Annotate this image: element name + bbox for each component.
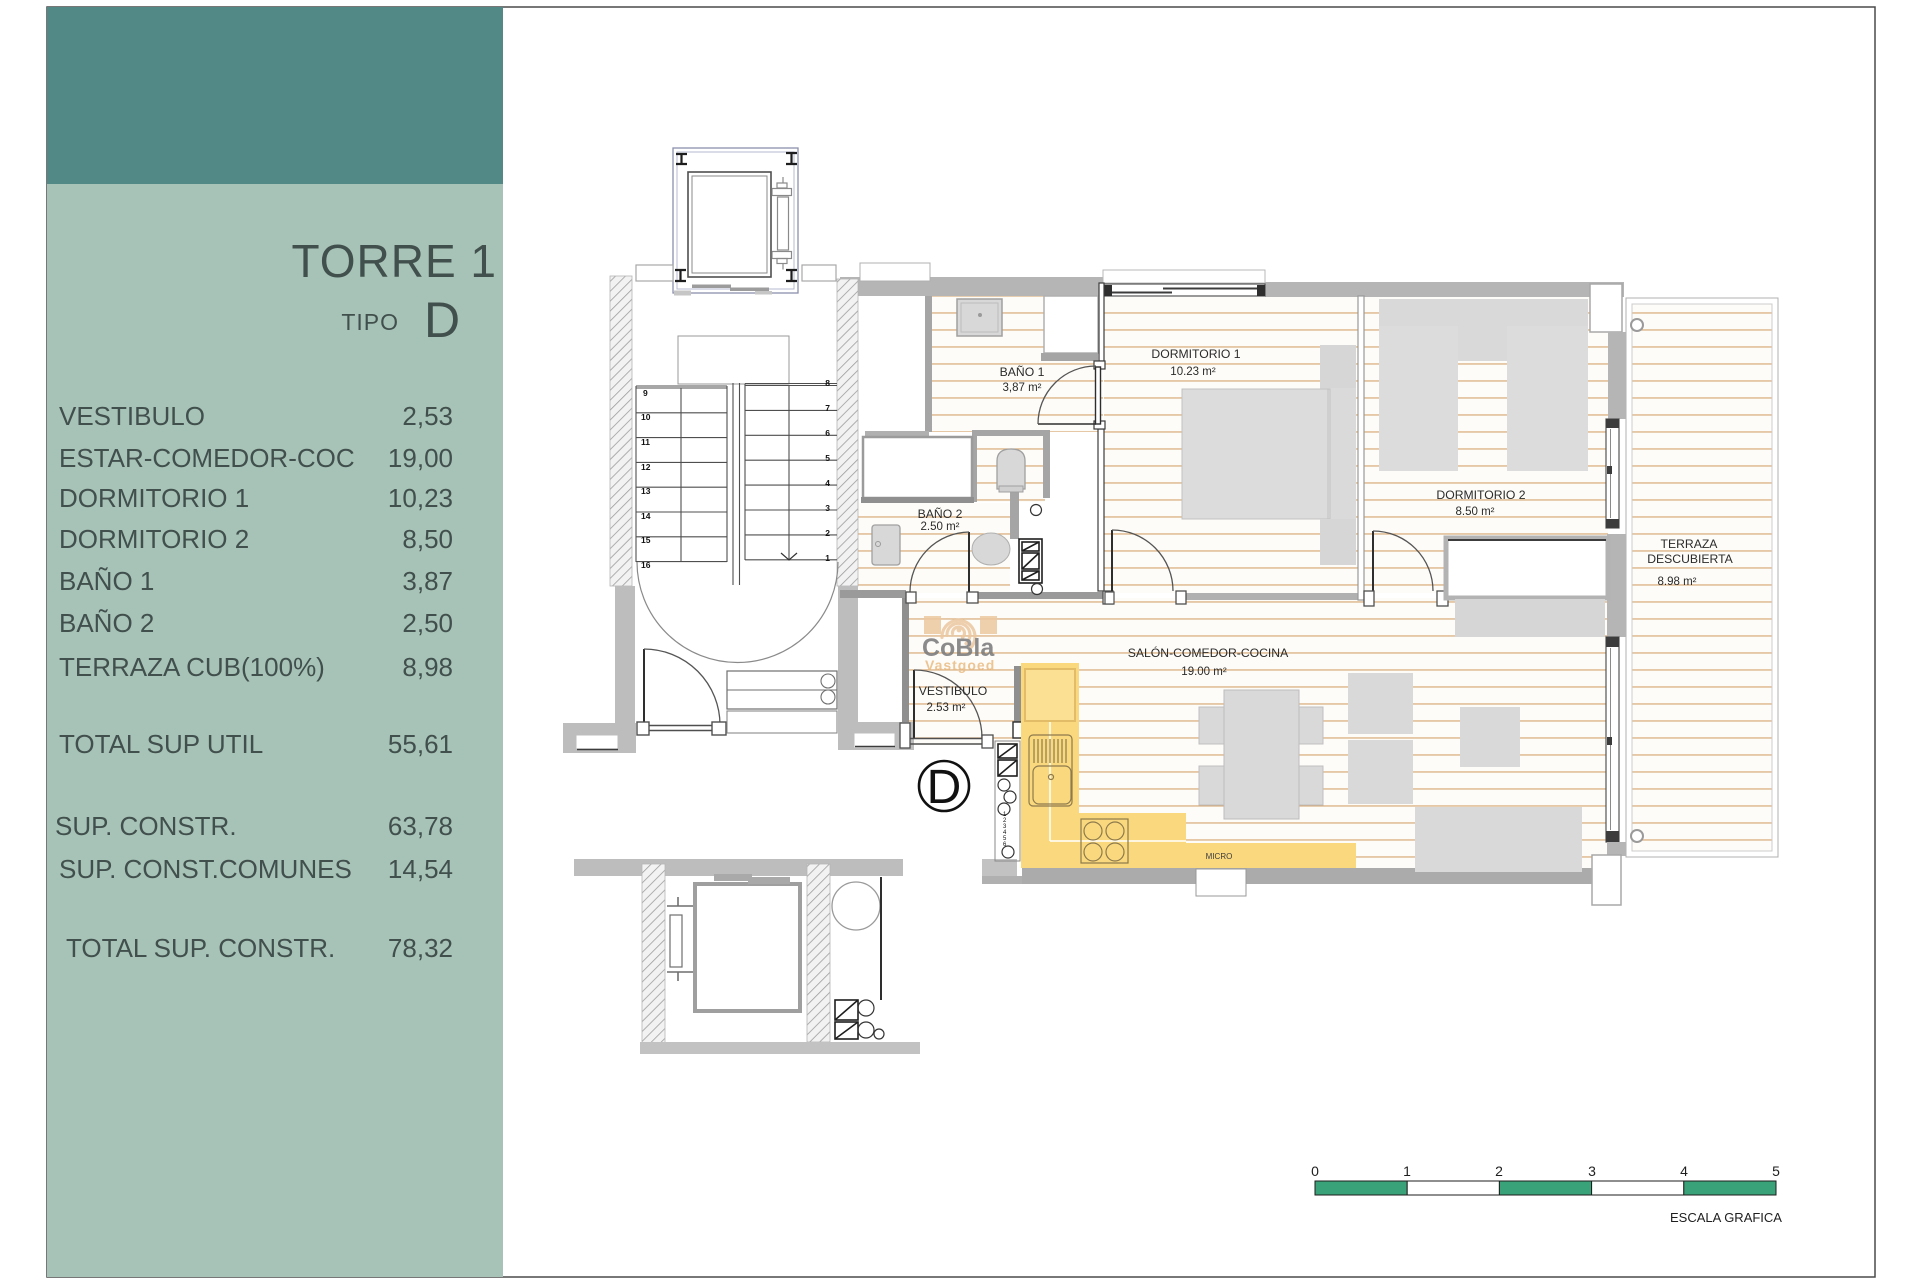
svg-text:5: 5: [1772, 1163, 1780, 1179]
svg-text:BAÑO 2: BAÑO 2: [59, 608, 154, 638]
svg-text:DESCUBIERTA: DESCUBIERTA: [1647, 552, 1733, 566]
svg-text:D: D: [927, 761, 962, 814]
svg-text:BAÑO 1: BAÑO 1: [1000, 365, 1045, 379]
svg-text:2.50 m²: 2.50 m²: [921, 521, 960, 533]
svg-text:8,50: 8,50: [402, 524, 453, 554]
svg-text:TOTAL SUP UTIL: TOTAL SUP UTIL: [59, 729, 263, 759]
svg-text:3: 3: [1588, 1163, 1596, 1179]
svg-text:11: 11: [641, 437, 650, 447]
svg-text:Vastgoed: Vastgoed: [925, 657, 995, 673]
svg-text:2: 2: [825, 528, 830, 538]
svg-text:10: 10: [641, 412, 651, 422]
svg-text:55,61: 55,61: [388, 729, 453, 759]
svg-text:8.50 m²: 8.50 m²: [1456, 506, 1495, 518]
svg-text:D: D: [424, 292, 460, 348]
svg-text:7: 7: [825, 403, 830, 413]
svg-text:ESCALA GRAFICA: ESCALA GRAFICA: [1670, 1210, 1782, 1225]
svg-text:2,50: 2,50: [402, 608, 453, 638]
svg-text:1: 1: [1403, 1163, 1411, 1179]
svg-text:SUP. CONST.COMUNES: SUP. CONST.COMUNES: [59, 854, 352, 884]
svg-text:0: 0: [1311, 1163, 1319, 1179]
svg-text:8: 8: [825, 378, 830, 388]
svg-text:78,32: 78,32: [388, 933, 453, 963]
svg-text:5: 5: [825, 453, 830, 463]
svg-text:TOTAL SUP. CONSTR.: TOTAL SUP. CONSTR.: [66, 933, 335, 963]
svg-text:TORRE 1: TORRE 1: [291, 235, 497, 287]
svg-text:10,23: 10,23: [388, 483, 453, 513]
svg-text:6: 6: [825, 428, 830, 438]
svg-text:16: 16: [641, 560, 651, 570]
svg-text:DORMITORIO 2: DORMITORIO 2: [59, 524, 249, 554]
svg-text:19,00: 19,00: [388, 443, 453, 473]
svg-text:14,54: 14,54: [388, 854, 453, 884]
svg-text:1: 1: [825, 553, 830, 563]
svg-text:8.98 m²: 8.98 m²: [1658, 576, 1697, 588]
svg-text:8,98: 8,98: [402, 652, 453, 682]
svg-text:DORMITORIO 1: DORMITORIO 1: [59, 483, 249, 513]
svg-text:TERRAZA: TERRAZA: [1661, 537, 1719, 551]
svg-text:19.00 m²: 19.00 m²: [1181, 666, 1227, 678]
svg-text:BAÑO 2: BAÑO 2: [918, 507, 963, 521]
svg-text:SALÓN-COMEDOR-COCINA: SALÓN-COMEDOR-COCINA: [1128, 645, 1289, 660]
svg-text:63,78: 63,78: [388, 811, 453, 841]
svg-text:2.53 m²: 2.53 m²: [927, 702, 966, 714]
svg-text:DORMITORIO 2: DORMITORIO 2: [1436, 488, 1525, 502]
svg-text:ESTAR-COMEDOR-COC: ESTAR-COMEDOR-COC: [59, 443, 355, 473]
svg-text:14: 14: [641, 511, 651, 521]
svg-text:TIPO: TIPO: [341, 309, 399, 335]
svg-text:MICRO: MICRO: [1206, 852, 1233, 861]
svg-text:3,87: 3,87: [402, 566, 453, 596]
svg-text:TERRAZA CUB(100%): TERRAZA CUB(100%): [59, 652, 325, 682]
svg-text:10.23 m²: 10.23 m²: [1170, 366, 1216, 378]
svg-text:4: 4: [825, 478, 830, 488]
svg-text:9: 9: [643, 388, 648, 398]
svg-text:VESTIBULO: VESTIBULO: [919, 684, 987, 698]
svg-text:12: 12: [641, 462, 651, 472]
svg-text:4: 4: [1680, 1163, 1688, 1179]
svg-text:2,53: 2,53: [402, 401, 453, 431]
svg-text:2: 2: [1495, 1163, 1503, 1179]
svg-text:DORMITORIO 1: DORMITORIO 1: [1151, 347, 1240, 361]
svg-text:13: 13: [641, 486, 651, 496]
svg-text:3,87 m²: 3,87 m²: [1003, 382, 1042, 394]
svg-text:SUP. CONSTR.: SUP. CONSTR.: [55, 811, 237, 841]
svg-text:15: 15: [641, 535, 651, 545]
svg-text:VESTIBULO: VESTIBULO: [59, 401, 205, 431]
svg-text:3: 3: [825, 503, 830, 513]
svg-text:BAÑO 1: BAÑO 1: [59, 566, 154, 596]
